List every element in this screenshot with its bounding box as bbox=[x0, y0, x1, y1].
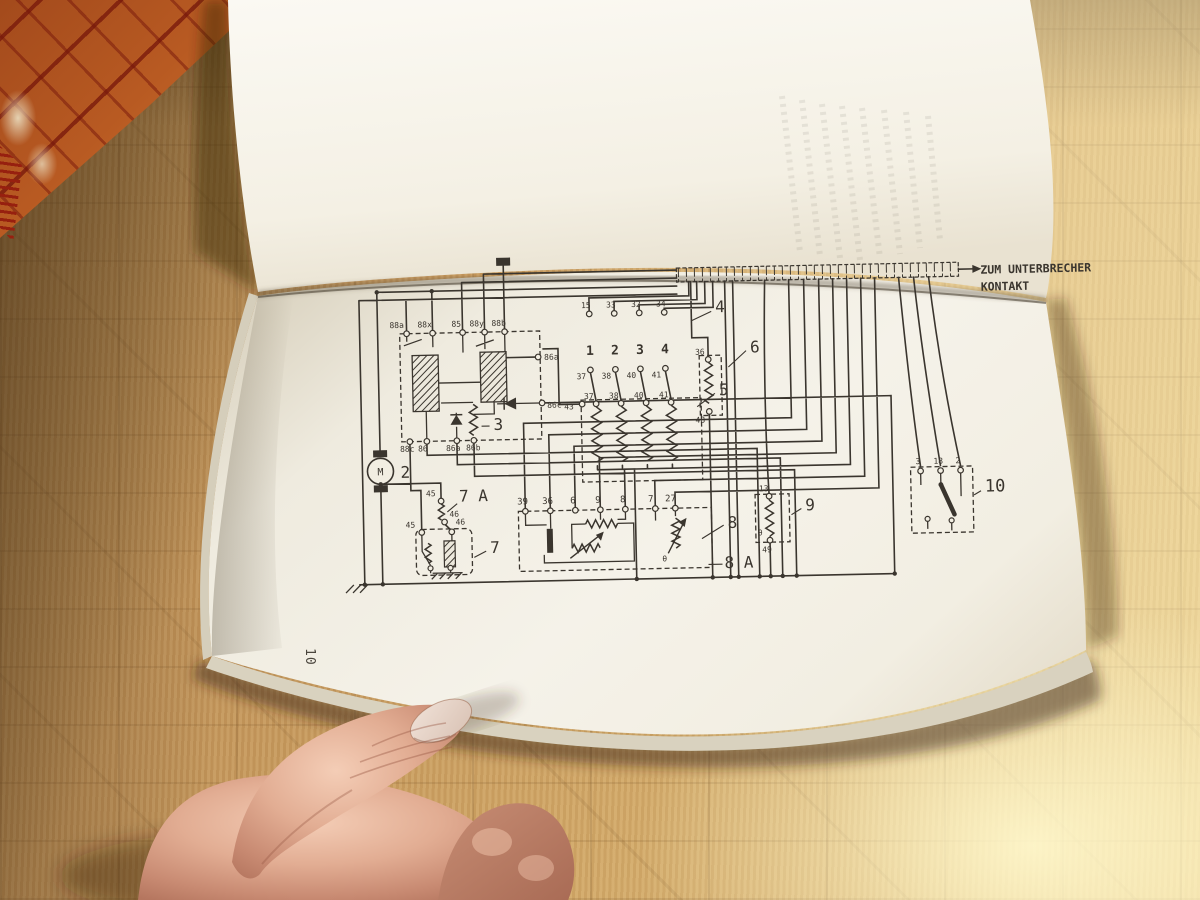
terminal-label: 46 bbox=[455, 518, 465, 527]
knuckle-highlight bbox=[518, 855, 554, 881]
terminal-label: 88a bbox=[389, 321, 404, 330]
top-connector-block bbox=[496, 258, 510, 266]
terminal-label: 13 bbox=[759, 484, 769, 493]
component-label-8: 8 bbox=[727, 513, 737, 532]
terminal-label: 36 bbox=[695, 348, 705, 357]
component-label-7: 7 bbox=[490, 538, 500, 557]
terminal-label: 15 bbox=[581, 301, 591, 310]
annotation-line2: KONTAKT bbox=[981, 279, 1030, 294]
component-label-7a: 7 A bbox=[459, 486, 489, 506]
component-label-4: 4 bbox=[715, 297, 725, 316]
switch-numeral: 2 bbox=[611, 343, 619, 358]
terminal-label: 88x bbox=[417, 320, 432, 329]
terminal-label: 33 bbox=[606, 300, 616, 309]
terminal-label: 36 bbox=[542, 497, 553, 507]
terminal-label: 86a bbox=[446, 444, 461, 453]
terminal-label: 38 bbox=[609, 391, 619, 400]
terminal-label: 86b bbox=[466, 443, 481, 452]
terminal-label: 37 bbox=[584, 392, 594, 401]
terminal-label: 27 bbox=[665, 494, 676, 504]
terminal-label: 49 bbox=[762, 545, 772, 554]
terminal-label: 86a bbox=[544, 353, 559, 362]
terminal-label: 40 bbox=[634, 391, 644, 400]
switch-numeral: 3 bbox=[636, 343, 644, 358]
terminal-label: 45 bbox=[426, 489, 436, 498]
terminal-label: 2 bbox=[955, 456, 960, 465]
theta-symbol: θ bbox=[662, 554, 667, 563]
terminal-label: 45 bbox=[406, 521, 416, 530]
terminal-label: 88y bbox=[469, 319, 484, 328]
annotation-line1: ZUM UNTERBRECHER bbox=[980, 260, 1091, 276]
terminal-label: 37 bbox=[576, 372, 586, 381]
terminal-label: 9 bbox=[595, 496, 601, 506]
terminal-label: 85 bbox=[451, 320, 461, 329]
terminal-label: 88c bbox=[400, 445, 415, 454]
book-and-hand: M bbox=[0, 0, 1200, 900]
terminal-label: 8 bbox=[620, 495, 626, 505]
terminal-label: 41 bbox=[651, 370, 661, 379]
terminal-label: 86 bbox=[418, 444, 428, 453]
switch-numeral: 1 bbox=[586, 344, 594, 359]
component-label-3: 3 bbox=[493, 415, 503, 434]
terminal-label: 88b bbox=[491, 319, 506, 328]
solenoid-coil bbox=[444, 541, 456, 567]
component-label-5: 5 bbox=[719, 380, 729, 399]
terminal-label: 41 bbox=[659, 390, 669, 399]
photo-scene: M bbox=[0, 0, 1200, 900]
capacitor-bar bbox=[547, 529, 554, 553]
component-label-10: 10 bbox=[985, 476, 1006, 496]
terminal-label: 32 bbox=[631, 300, 641, 309]
terminal-label: 6 bbox=[570, 496, 576, 506]
terminal-label: 43 bbox=[564, 402, 574, 411]
terminal-label: 7 bbox=[648, 495, 654, 505]
terminal-label: 3 bbox=[915, 457, 920, 466]
switch-numeral: 4 bbox=[661, 342, 669, 357]
terminal-label: 18 bbox=[933, 457, 943, 466]
terminal-label: 48 bbox=[695, 416, 705, 425]
component-label-8a: 8 A bbox=[724, 553, 754, 573]
terminal-label: 40 bbox=[626, 371, 636, 380]
component-label-9: 9 bbox=[805, 495, 815, 514]
relay-coil bbox=[412, 355, 439, 412]
relay-coil bbox=[480, 352, 507, 403]
motor-letter: M bbox=[377, 467, 383, 478]
page-number: 10 bbox=[302, 648, 317, 666]
terminal-label: 39 bbox=[517, 497, 528, 507]
component-label-2: 2 bbox=[400, 463, 410, 482]
component-label-6: 6 bbox=[750, 337, 760, 356]
knuckle-highlight bbox=[472, 828, 512, 856]
terminal-label: 38 bbox=[601, 371, 611, 380]
theta-symbol: θ bbox=[758, 528, 763, 537]
terminal-label: 86c bbox=[547, 401, 562, 410]
terminal-label: 34 bbox=[656, 299, 666, 308]
